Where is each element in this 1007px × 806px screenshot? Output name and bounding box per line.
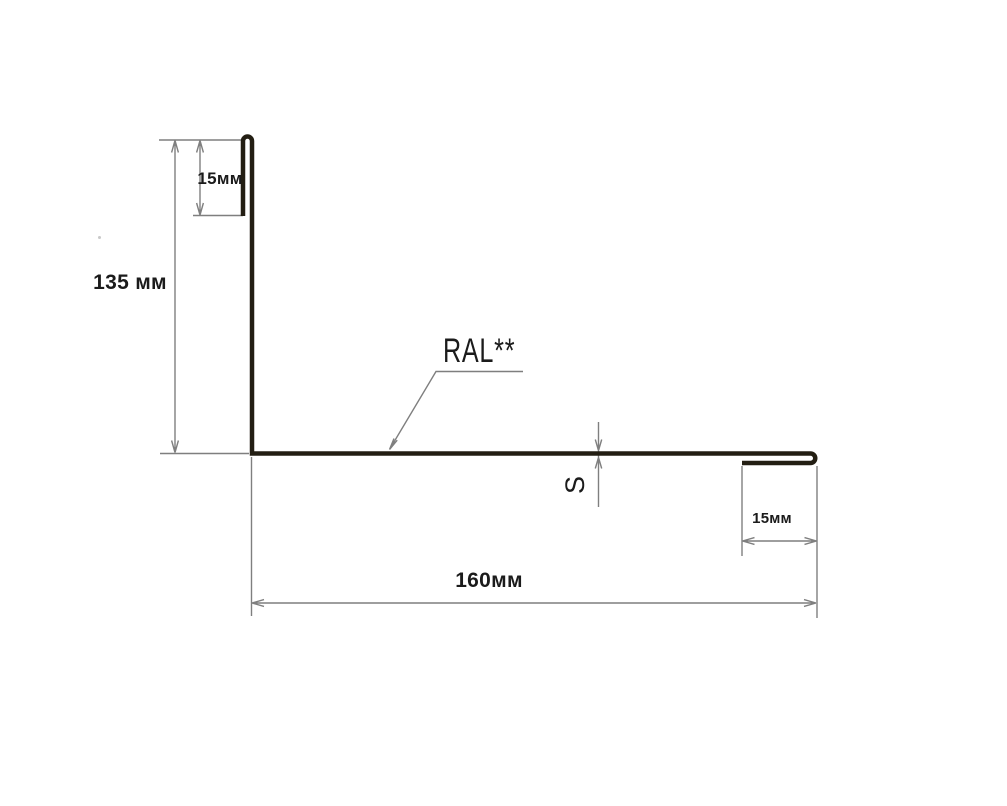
drawing-lines (0, 0, 1007, 806)
dimension-label-left-leg: 135 мм (78, 271, 182, 295)
profile-outline (243, 137, 815, 464)
dimension-label-right-hem: 15мм (743, 510, 801, 527)
coating-label-ral: RAL** (443, 332, 515, 371)
thickness-label-s: S (560, 470, 590, 500)
dimension-label-bottom-leg: 160мм (447, 569, 531, 593)
speck-artifact (98, 236, 101, 239)
profile-drawing-canvas: 15мм 135 мм RAL** S 15мм 160мм (0, 0, 1007, 806)
dimension-line-15-bottom (743, 538, 817, 545)
dimension-line-thickness (595, 422, 601, 507)
leader-line-coating (390, 372, 524, 450)
dimension-label-top-hem: 15мм (191, 169, 249, 189)
dimension-line-160 (252, 600, 816, 607)
dimension-line-135 (172, 141, 179, 453)
